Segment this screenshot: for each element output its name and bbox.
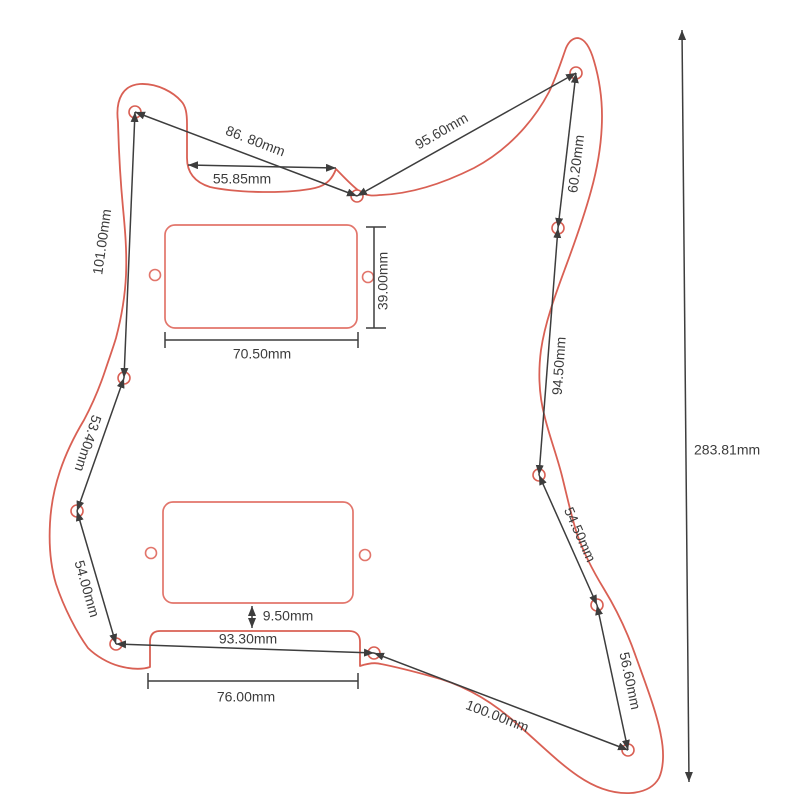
- dim-label-70-50: 70.50mm: [233, 346, 291, 362]
- dim-label-93-30: 93.30mm: [219, 631, 277, 647]
- dim-label-55-85: 55.85mm: [213, 171, 271, 187]
- dim-label-56-60: 56.60mm: [616, 651, 644, 711]
- dim-label-283-81: 283.81mm: [694, 442, 760, 458]
- dim-label-86-80: 86. 80mm: [224, 122, 288, 159]
- dim-label-100-00: 100.00mm: [464, 696, 531, 735]
- bridge-pickup-cutout: [163, 502, 353, 603]
- dim-label-54-00: 54.00mm: [72, 558, 103, 619]
- neck-pickup-mounting-hole-right: [363, 272, 374, 283]
- pickguard-dimension-drawing: 101.00mm 86. 80mm 55.85mm 95.60mm 60.20m…: [0, 0, 800, 800]
- dim-label-94-50: 94.50mm: [549, 336, 569, 395]
- dim-line-95-60: [357, 73, 576, 196]
- dim-label-101-00: 101.00mm: [89, 208, 114, 276]
- bridge-pickup-mounting-hole-left: [146, 548, 157, 559]
- dim-label-95-60: 95.60mm: [412, 109, 471, 152]
- dim-label-9-50: 9.50mm: [263, 608, 314, 624]
- dim-label-54-50: 54.50mm: [561, 505, 599, 565]
- dim-line-100-00: [374, 653, 628, 750]
- dim-line-55-85: [188, 165, 336, 168]
- neck-pickup-mounting-hole-left: [150, 270, 161, 281]
- neck-pickup-cutout: [165, 225, 357, 328]
- dim-label-53-40: 53.40mm: [72, 413, 105, 473]
- dim-label-76-00: 76.00mm: [217, 689, 275, 705]
- drawing-canvas: 101.00mm 86. 80mm 55.85mm 95.60mm 60.20m…: [0, 0, 800, 800]
- dim-line-283-81: [682, 30, 689, 782]
- bridge-pickup-mounting-hole-right: [360, 550, 371, 561]
- dim-label-39-00: 39.00mm: [375, 252, 391, 310]
